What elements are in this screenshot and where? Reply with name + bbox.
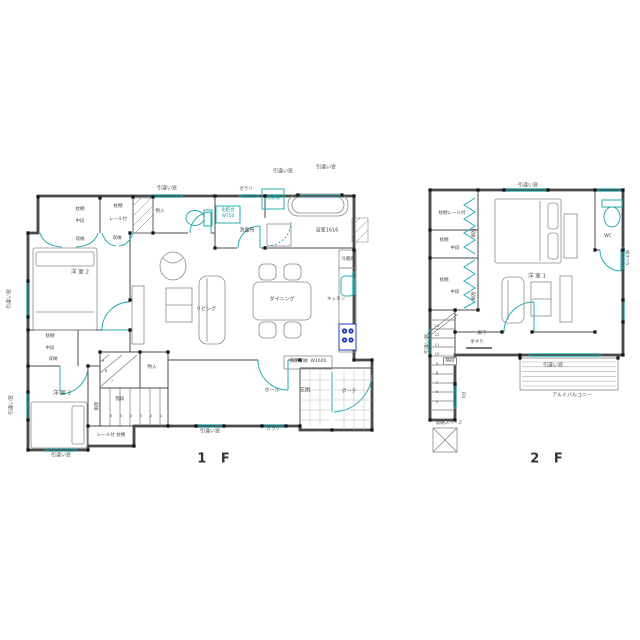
shelf-2f-a: 枕棚 — [440, 239, 449, 244]
stair2f-num-5: 5 — [436, 400, 438, 404]
stair1f-num-5: 5 — [120, 414, 122, 418]
furniture-1f — [31, 189, 356, 448]
dining-chair — [284, 264, 301, 280]
entry-label: 玄関 — [300, 389, 310, 394]
attic-label: 収納スペース — [436, 422, 462, 427]
outer-wall-2f — [430, 190, 623, 420]
win-label-left-2: 引違い窓 — [10, 395, 15, 415]
armchair — [160, 252, 186, 280]
stair1f-num-3: 3 — [140, 414, 142, 418]
win-label-2f-left: 引違い窓 — [426, 334, 431, 354]
room1-label: 洋 室 1 — [528, 274, 546, 280]
win-label-top-bath: 引違い窓 — [316, 166, 336, 171]
bed-room1 — [495, 199, 561, 263]
stair2f-num-7: 7 — [436, 381, 438, 385]
shelf-label-a: 枕棚 — [76, 208, 85, 213]
win-label-top-wash: 引違い窓 — [273, 170, 293, 175]
floor-2f — [427, 189, 624, 452]
porch-label: ポーチ — [341, 390, 356, 395]
stair2f-num-10: 10 — [435, 352, 440, 356]
stair1f-num-7: 7 — [111, 379, 113, 383]
windows-1f — [27, 195, 355, 451]
vanity-size-label: W750 — [221, 215, 234, 220]
closet-label-top: 物入 — [156, 210, 165, 215]
mid-2f-a: 中段 — [451, 247, 460, 252]
bathroom-label: 浴室1616 — [316, 229, 339, 234]
slide-win-label-2f-right: 縦すべり — [625, 250, 629, 266]
floor-label-1f: 1 F — [197, 453, 234, 466]
floor-label-2f: 2 F — [530, 453, 567, 466]
washer-label: 洗濯機 — [266, 197, 280, 202]
tv-board-2f — [560, 276, 572, 322]
dining-chair — [259, 264, 276, 280]
toilet-2f — [602, 200, 622, 227]
hatched-closet-top — [133, 198, 153, 233]
stair1f-num-1: 1 — [160, 414, 162, 418]
sto-2f-a: 収納 — [469, 229, 474, 238]
sofa-2f — [502, 277, 524, 323]
shelf-label-b: 枕棚 — [114, 205, 123, 210]
stair2f-num-6: 6 — [436, 390, 438, 394]
washroom-label: 洗面所 — [239, 229, 254, 234]
void-box — [433, 428, 457, 452]
louver-label-bottom: ガラリ — [266, 428, 280, 433]
midshelf-label-c: 中段 — [46, 347, 55, 352]
win-label-room3: 引違い窓 — [51, 454, 71, 459]
win-label-balcony: 引違い窓 — [543, 364, 563, 369]
stair-label-2f: 階段 — [443, 357, 457, 365]
louver-label-top: ガラリ — [239, 188, 253, 193]
room3-label: 洋 室 3 — [53, 391, 71, 397]
interior-walls-1f — [28, 196, 372, 450]
closet-label-stair: 物入 — [148, 366, 157, 371]
hallway-label: 廊下 — [478, 332, 487, 337]
living-label: リビング — [196, 308, 216, 313]
win-label-bottom: 引違い窓 — [200, 430, 220, 435]
doors-2f — [504, 250, 621, 332]
dining-chair — [284, 322, 301, 338]
wc-label: WC — [604, 235, 612, 240]
hall-label: ホール — [264, 389, 279, 394]
midshelf-label-a: 中段 — [76, 220, 85, 225]
stair2f-num-12: 12 — [435, 333, 440, 337]
entry-storage-label: 玄関収納 W1600 — [290, 360, 327, 365]
shelf-rail-label-2f: 枕棚レール付 — [439, 212, 466, 217]
mid-2f-b: 中段 — [451, 291, 460, 296]
stair2f-num-11: 11 — [435, 343, 440, 347]
kitchen-label: キッチン — [327, 298, 345, 303]
vanity-label: 化粧台 — [221, 209, 235, 214]
stair1f-num-6: 6 — [110, 414, 112, 418]
storage-label-c: 収納 — [49, 358, 58, 363]
room2-label: 洋 室 2 — [71, 270, 89, 276]
stove — [339, 324, 356, 350]
stair1f-num-2: 2 — [150, 414, 152, 418]
plan-linework — [0, 0, 640, 640]
rail-label-b: レール付 — [109, 218, 127, 223]
bed-room2 — [33, 248, 97, 330]
floor-plan-canvas: 引違い窓ガラリ引違い窓引違い窓洗濯機化粧台W750洗面所浴室1616冷蔵庫キッチ… — [0, 0, 640, 640]
stair-label-1f: 階段 — [116, 398, 125, 403]
stair1f-num-9: 9 — [102, 359, 104, 363]
outer-wall-1f — [28, 196, 372, 450]
stair2f-num-9: 9 — [436, 362, 438, 366]
dresser — [564, 214, 577, 258]
balcony-label: アルミバルコニー — [552, 394, 592, 399]
entry-tiles — [284, 356, 372, 430]
win-label-left-1: 引違い窓 — [8, 289, 13, 309]
dining-label: ダイニング — [269, 298, 294, 303]
balcony — [520, 358, 618, 390]
storage-label-d: 収納 — [92, 402, 97, 411]
stair1f-num-8: 8 — [105, 369, 107, 373]
stair2f-num-13: 13 — [435, 324, 440, 328]
interior-walls-2f — [430, 190, 623, 420]
fridge-label: 冷蔵庫 — [341, 258, 355, 263]
dining-chair — [259, 322, 276, 338]
tv-board-1f — [132, 286, 144, 344]
handrail-label: 手すり — [470, 341, 484, 346]
sto-2f-b: 収納 — [469, 292, 474, 301]
stair1f-num-4: 4 — [130, 414, 132, 418]
storage-label-a: 収納 — [76, 238, 85, 243]
rail-shelf-label: レール付 枕棚 — [97, 434, 125, 439]
fix-label: FIX — [461, 392, 465, 398]
shelf-2f-b: 枕棚 — [440, 279, 449, 284]
bed-room3 — [31, 402, 87, 448]
stair2f-num-8: 8 — [436, 371, 438, 375]
kitchen-sink — [341, 276, 354, 296]
shelf-label-c: 枕棚 — [46, 335, 55, 340]
storage-label-b: 収納 — [113, 237, 122, 242]
win-label-2f-top: 引違い窓 — [518, 184, 538, 189]
win-label-top-toilet: 引違い窓 — [157, 187, 177, 192]
